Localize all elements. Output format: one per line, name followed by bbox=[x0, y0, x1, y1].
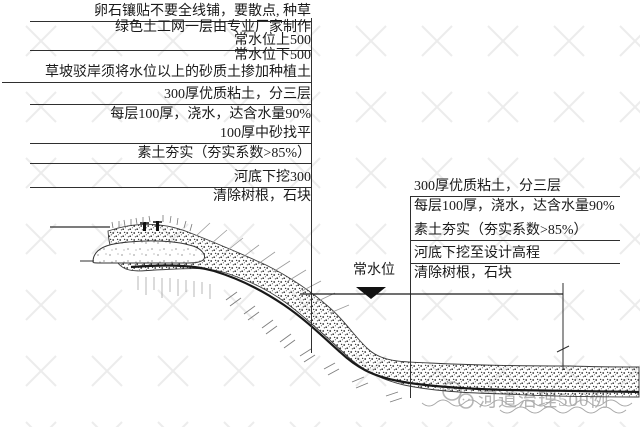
callout-left-row: 草坡驳岸须将水位以上的砂质土掺加种植土 bbox=[2, 65, 311, 83]
callout-left-row: 300厚优质粘土，分三层 bbox=[30, 86, 311, 105]
callout-left-row: 常水位下500 bbox=[30, 51, 311, 65]
water-level-label: 常水位 bbox=[344, 263, 404, 280]
callout-right-row: 300厚优质粘土，分三层 bbox=[410, 176, 620, 197]
callout-left-row: 100厚中砂找平 bbox=[30, 126, 311, 144]
callout-left-row: 河底下挖300 bbox=[30, 168, 311, 188]
callout-left-row: 素土夯实（夯实系数>85%） bbox=[30, 146, 311, 164]
callout-left-row: 卵石镶贴不要全线铺，要散点, 种草 bbox=[30, 1, 311, 22]
callout-right-row: 清除树根，石块 bbox=[410, 265, 620, 283]
callout-right-row: 素土夯实（夯实系数>85%） bbox=[410, 218, 620, 241]
callout-right-row: 河底下挖至设计高程 bbox=[410, 243, 620, 264]
callout-right-row: 每层100厚，浇水，达含水量90% bbox=[410, 199, 620, 216]
riverbank-cross-section-diagram: 河道治理500例 bbox=[0, 0, 640, 427]
callout-left-row: 每层100厚，浇水，达含水量90% bbox=[30, 107, 311, 124]
callout-left-row: 清除树根，石块 bbox=[30, 190, 311, 206]
